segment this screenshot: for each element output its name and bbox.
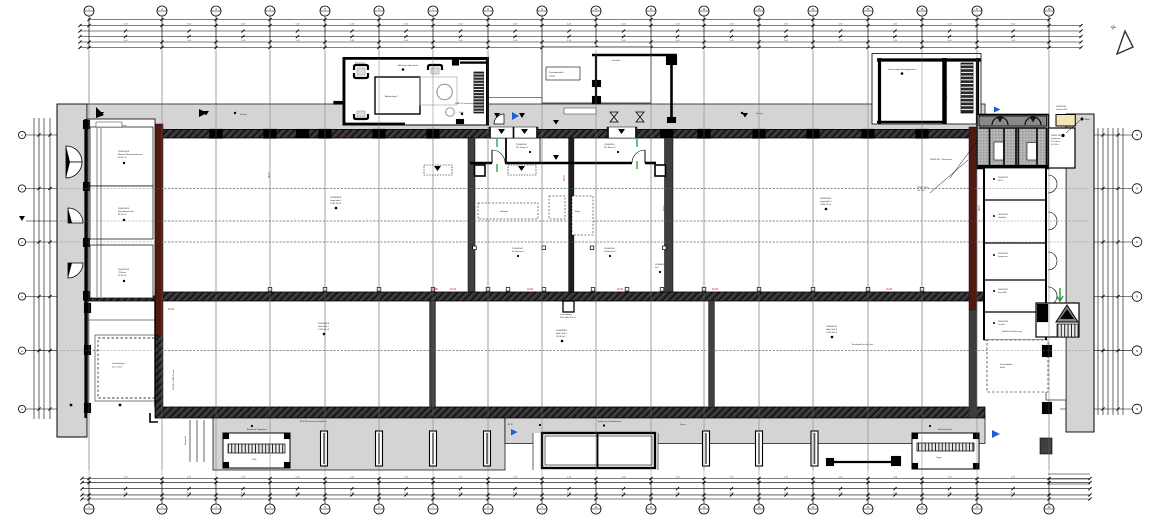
svg-text:Abluft nach oben führen: Abluft nach oben führen xyxy=(398,64,418,67)
svg-text:134082/008: 134082/008 xyxy=(820,198,832,200)
svg-text:134087 WC: 134087 WC xyxy=(1051,135,1062,137)
svg-text:Sozialraum: Sozialraum xyxy=(998,255,1008,258)
svg-text:134085 WC / Technikraum: 134085 WC / Technikraum xyxy=(930,158,953,161)
svg-text:134087/013: 134087/013 xyxy=(998,214,1008,216)
svg-text:Flur: Flur xyxy=(655,267,659,269)
svg-text:WC Damen 1: WC Damen 1 xyxy=(516,147,529,149)
svg-text:Wasser Elektroverteilraum: Wasser Elektroverteilraum xyxy=(118,153,143,156)
svg-text:1.856,22 m²: 1.856,22 m² xyxy=(820,203,831,206)
svg-text:134084/006: 134084/006 xyxy=(516,144,527,146)
svg-text:134087/012: 134087/012 xyxy=(998,177,1008,179)
svg-text:134084/003: 134084/003 xyxy=(604,248,615,250)
svg-text:978,40 m²: 978,40 m² xyxy=(556,335,566,338)
svg-text:1.034,80 m²: 1.034,80 m² xyxy=(318,328,329,331)
svg-text:anlage: anlage xyxy=(549,76,556,78)
svg-text:H: 4,50 m OKFF Rampe: H: 4,50 m OKFF Rampe xyxy=(173,370,175,390)
svg-text:19,49: 19,49 xyxy=(432,289,438,291)
svg-text:Werkbank: Werkbank xyxy=(500,211,508,213)
svg-text:IT-Raum: IT-Raum xyxy=(118,272,126,274)
svg-text:134083/010: 134083/010 xyxy=(826,326,838,328)
svg-text:Aussparung: Aussparung xyxy=(355,62,365,65)
svg-text:134081/010: 134081/010 xyxy=(118,269,130,271)
svg-text:WC-D: WC-D xyxy=(998,180,1004,182)
svg-text:19,49: 19,49 xyxy=(562,175,564,181)
svg-text:44,91 m²: 44,91 m² xyxy=(118,213,127,216)
svg-text:fläche: fläche xyxy=(1000,367,1005,369)
svg-text:134083/008: 134083/008 xyxy=(318,323,330,325)
svg-text:19,49: 19,49 xyxy=(886,289,892,291)
svg-text:134087/014: 134087/014 xyxy=(998,253,1008,255)
svg-text:134081/008: 134081/008 xyxy=(118,151,130,153)
svg-text:Anlieferung Überladebrücken: Anlieferung Überladebrücken xyxy=(598,420,621,423)
svg-text:WC Herren 1: WC Herren 1 xyxy=(604,147,617,149)
svg-text:Halle Süd 2: Halle Süd 2 xyxy=(556,333,568,335)
svg-text:Sozialraum: Sozialraum xyxy=(1051,137,1061,140)
svg-text:4,01 x 6,01: 4,01 x 6,01 xyxy=(112,367,123,369)
svg-text:19,49: 19,49 xyxy=(617,289,623,291)
svg-text:Verbau: Verbau xyxy=(680,424,686,426)
svg-text:134087/011: 134087/011 xyxy=(1056,106,1067,108)
svg-text:Fassadenbefahr-: Fassadenbefahr- xyxy=(549,72,564,74)
svg-text:19,49: 19,49 xyxy=(712,289,718,291)
svg-text:134084/005: 134084/005 xyxy=(604,144,615,146)
svg-text:BF-Pl 85 Feuerwehraufstellfläc: BF-Pl 85 Feuerwehraufstellfläche xyxy=(300,420,327,423)
svg-text:134081/009: 134081/009 xyxy=(118,208,130,210)
svg-text:Halle Süd 3: Halle Süd 3 xyxy=(826,329,838,331)
svg-text:Erste Hilfe: Erste Hilfe xyxy=(998,291,1007,294)
svg-text:Technik: Technik xyxy=(998,324,1004,326)
svg-text:OG Teil 1: OG Teil 1 xyxy=(917,190,926,192)
svg-text:41 70,00 m²: 41 70,00 m² xyxy=(1051,140,1061,143)
svg-text:Trennvorhang: Trennvorhang xyxy=(560,313,572,316)
svg-text:Kranbahn: Kranbahn xyxy=(612,60,621,62)
svg-text:19,49: 19,49 xyxy=(450,289,456,291)
svg-text:Abluft: Abluft xyxy=(1085,118,1090,121)
svg-text:134087/015: 134087/015 xyxy=(998,289,1008,291)
svg-text:134080/008: 134080/008 xyxy=(330,197,342,199)
svg-text:Hublift für Räumfahrzeuge: Hublift für Räumfahrzeuge xyxy=(1002,330,1022,333)
svg-text:Halle Süd 1: Halle Süd 1 xyxy=(318,326,330,328)
svg-text:Vorraum WC: Vorraum WC xyxy=(1056,109,1068,111)
svg-text:Rampe 6%: Rampe 6% xyxy=(185,435,187,445)
svg-text:19,49: 19,49 xyxy=(977,205,979,211)
svg-text:46,05 m²: 46,05 m² xyxy=(118,156,127,159)
svg-text:Lagerhalle 2: Lagerhalle 2 xyxy=(820,200,832,203)
svg-text:1.102,60 m²: 1.102,60 m² xyxy=(826,331,837,334)
svg-text:Abluftanlage 1: Abluftanlage 1 xyxy=(385,95,399,98)
svg-text:Vorhang: Vorhang xyxy=(756,113,763,115)
svg-text:Getränkelager: Getränkelager xyxy=(112,362,125,365)
svg-text:17 Stg: 17 Stg xyxy=(945,95,948,100)
svg-text:19,49: 19,49 xyxy=(168,309,174,311)
svg-text:Heizung: Heizung xyxy=(240,114,247,116)
svg-text:Schutzraum 1: Schutzraum 1 xyxy=(512,250,525,253)
svg-text:19,49: 19,49 xyxy=(267,172,269,178)
svg-text:Anlieferung Nord: Anlieferung Nord xyxy=(938,428,952,431)
svg-text:19,49: 19,49 xyxy=(662,205,664,211)
svg-text:Umkleide: Umkleide xyxy=(998,217,1006,219)
svg-text:H: 2,50 m: H: 2,50 m xyxy=(1051,144,1059,146)
svg-text:Regal: Regal xyxy=(575,211,580,213)
svg-text:19,49: 19,49 xyxy=(343,136,349,138)
svg-text:RWA 2,5% Dachentwässerung: RWA 2,5% Dachentwässerung xyxy=(455,102,479,105)
svg-text:Brandwand bis unter Dach: Brandwand bis unter Dach xyxy=(852,343,873,346)
svg-text:Sprinklerzentrale: Sprinklerzentrale xyxy=(118,210,134,213)
svg-text:Treppe: Treppe xyxy=(936,457,942,459)
svg-text:Dachaustieg Fluchttreppenhaus: Dachaustieg Fluchttreppenhaus xyxy=(888,68,916,71)
svg-text:45,22 m²: 45,22 m² xyxy=(118,274,127,277)
svg-text:134087/016: 134087/016 xyxy=(998,321,1008,323)
svg-text:Schutzraum 2: Schutzraum 2 xyxy=(604,250,617,253)
svg-text:19,49: 19,49 xyxy=(527,289,533,291)
svg-text:BF 85: BF 85 xyxy=(508,424,513,426)
svg-text:134083/009: 134083/009 xyxy=(556,330,568,332)
svg-text:2.345,10 m²: 2.345,10 m² xyxy=(330,202,341,205)
svg-text:8 Stg: 8 Stg xyxy=(252,458,256,461)
svg-text:134084/004: 134084/004 xyxy=(512,248,523,250)
svg-text:134084/002: 134084/002 xyxy=(655,264,666,266)
svg-text:Anlieferung Treppenhaus: Anlieferung Treppenhaus xyxy=(247,428,267,431)
svg-text:Schneeablade-: Schneeablade- xyxy=(1000,364,1013,366)
svg-text:lichte Höhe 4,50 m: lichte Höhe 4,50 m xyxy=(560,316,576,319)
svg-text:Lagerhalle 1: Lagerhalle 1 xyxy=(330,199,342,202)
